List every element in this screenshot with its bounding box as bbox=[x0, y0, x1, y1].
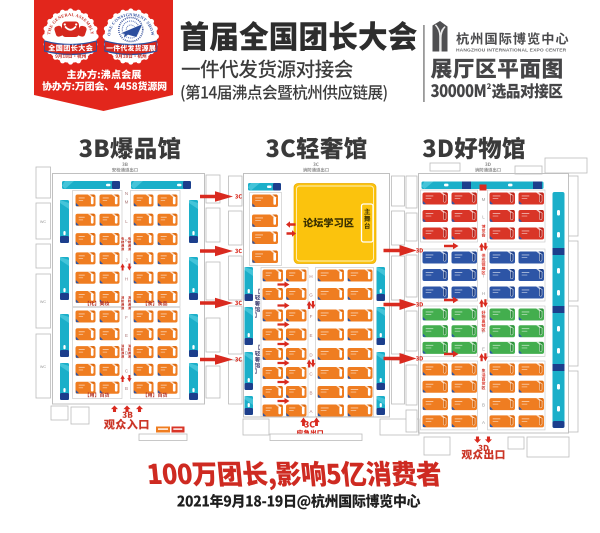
svg-text:F: F bbox=[125, 315, 128, 320]
svg-text:E: E bbox=[125, 333, 128, 338]
svg-text:A: A bbox=[309, 409, 312, 414]
svg-text:E: E bbox=[482, 346, 485, 351]
svg-text:B: B bbox=[482, 403, 485, 408]
svg-text:M: M bbox=[482, 197, 486, 202]
svg-text:A: A bbox=[482, 420, 485, 425]
svg-text:G: G bbox=[309, 293, 313, 298]
svg-text:HANGZHOU INTERNATIONAL EXPO CE: HANGZHOU INTERNATIONAL EXPO CENTER bbox=[456, 48, 567, 54]
svg-text:B: B bbox=[309, 391, 312, 396]
svg-text:H: H bbox=[482, 291, 485, 296]
svg-text:K: K bbox=[125, 238, 128, 243]
svg-text:WC: WC bbox=[40, 365, 47, 369]
svg-text:H: H bbox=[309, 274, 312, 279]
svg-text:N: N bbox=[125, 191, 128, 196]
svg-text:J: J bbox=[125, 257, 127, 262]
svg-text:E: E bbox=[309, 333, 312, 338]
svg-text:B: B bbox=[125, 386, 128, 391]
svg-text:WC: WC bbox=[40, 220, 47, 224]
svg-text:WC: WC bbox=[40, 300, 47, 304]
svg-text:F: F bbox=[310, 314, 313, 319]
svg-text:M: M bbox=[125, 200, 129, 205]
svg-text:H: H bbox=[125, 277, 128, 282]
